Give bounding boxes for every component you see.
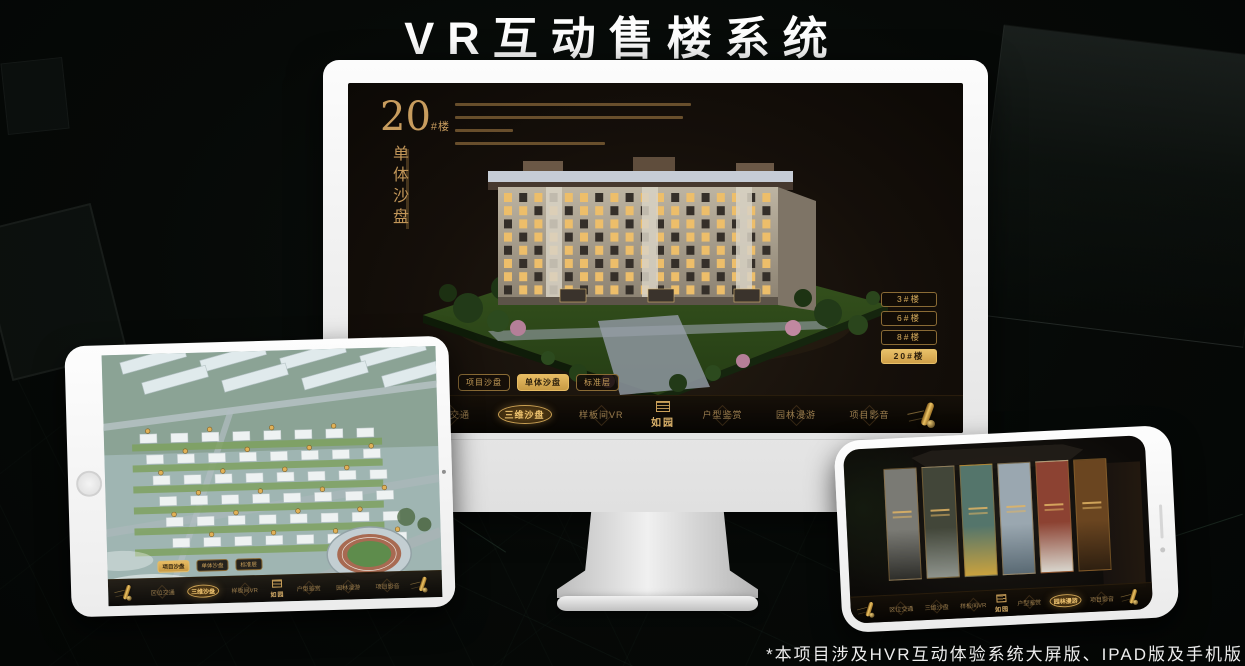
monitor-stand [557,512,758,598]
tablet-nav-item-三维沙盘[interactable]: 三维沙盘 [187,584,219,598]
phone-scroll-icon-right[interactable] [1126,588,1140,605]
phone-nav-item-项目影音[interactable]: 项目影音 [1087,592,1118,604]
tablet-nav-item-园林漫游[interactable]: 园林漫游 [333,581,363,593]
phone-screen: 区位交通三维沙盘样板间VR如园户型鉴赏园林漫游项目影音 [843,435,1153,624]
scene-gallery [883,458,1111,581]
floor-button-group: 3#楼6#楼8#楼20#楼 [881,292,937,368]
floor-button-8#楼[interactable]: 8#楼 [881,330,937,345]
phone-nav-item-园林漫游[interactable]: 园林漫游 [1049,593,1082,608]
scene-card-2[interactable] [921,465,959,578]
phone-brand-logo[interactable]: 如园 [994,593,1009,613]
card-caption-marks [969,507,988,510]
phone-scroll-icon-left[interactable] [863,601,877,618]
monitor-nav-item-项目影音[interactable]: 项目影音 [843,406,895,423]
brand-seal-icon [656,401,670,412]
tablet-tab-标准层[interactable]: 标准层 [235,558,262,571]
monitor-tab-项目沙盘[interactable]: 项目沙盘 [458,374,510,391]
block-title-number: 20 [380,94,431,140]
scene-card-1[interactable] [883,467,921,580]
floor-button-6#楼[interactable]: 6#楼 [881,311,937,326]
tablet-brand-logo[interactable]: 如园 [270,579,285,598]
phone-nav-item-三维沙盘[interactable]: 三维沙盘 [921,600,952,612]
tablet-nav-item-项目影音[interactable]: 项目影音 [372,580,402,592]
stage: VR互动售楼系统 [0,0,1245,666]
monitor-brand-logo[interactable]: 如园 [651,401,675,429]
tablet-tab-单体沙盘[interactable]: 单体沙盘 [196,559,228,572]
monitor-tab-单体沙盘[interactable]: 单体沙盘 [517,374,569,391]
monitor-tab-标准层[interactable]: 标准层 [576,374,619,391]
phone-device: 区位交通三维沙盘样板间VR如园户型鉴赏园林漫游项目影音 [834,425,1180,633]
monitor-nav-item-户型鉴赏[interactable]: 户型鉴赏 [696,406,748,423]
monitor-base [557,596,758,611]
tablet-nav-item-样板间VR[interactable]: 样板间VR [228,584,261,596]
brand-logo-label: 如园 [995,603,1009,613]
monitor-sub-tabs: 项目沙盘单体沙盘标准层 [458,374,619,391]
scene-card-6[interactable] [1073,458,1111,571]
phone-nav-item-户型鉴赏[interactable]: 户型鉴赏 [1014,596,1045,608]
brand-seal-icon [272,579,282,587]
front-camera-dot [1160,547,1165,552]
tablet-tab-项目沙盘[interactable]: 项目沙盘 [157,560,189,573]
floor-button-20#楼[interactable]: 20#楼 [881,349,937,364]
block-subtitle-english [406,149,409,229]
tablet-screen: 项目沙盘单体沙盘标准层 区位交通三维沙盘样板间VR如园户型鉴赏园林漫游项目影音 [102,346,443,606]
footnote: *本项目涉及HVR互动体验系统大屏版、IPAD版及手机版 [766,640,1243,665]
block-title-unit: #楼 [431,121,450,133]
project-description-text [455,103,691,155]
tablet-scroll-icon-right[interactable] [416,576,430,592]
brand-logo-label: 如园 [651,414,675,429]
card-caption-marks [931,509,950,512]
floor-button-3#楼[interactable]: 3#楼 [881,292,937,307]
masterplan-aerial-render[interactable] [102,346,443,606]
scene-card-4[interactable] [997,462,1035,575]
scene-card-5[interactable] [1035,460,1073,573]
card-caption-marks [1045,503,1064,506]
card-caption-marks [1082,501,1101,504]
background-photo-right [968,24,1245,348]
tablet-device: 项目沙盘单体沙盘标准层 区位交通三维沙盘样板间VR如园户型鉴赏园林漫游项目影音 [64,336,455,618]
camera-dot [442,469,446,473]
phone-nav-item-区位交通[interactable]: 区位交通 [886,602,917,614]
phone-nav-item-样板间VR[interactable]: 样板间VR [957,598,990,611]
tablet-scroll-icon-left[interactable] [120,585,134,601]
brand-seal-icon [996,594,1006,602]
background-photo-small [0,57,69,135]
scene-card-3[interactable] [959,464,997,577]
monitor-nav-item-园林漫游[interactable]: 园林漫游 [770,406,822,423]
card-caption-marks [893,510,912,513]
monitor-nav-item-三维沙盘[interactable]: 三维沙盘 [498,405,552,424]
tablet-nav-item-区位交通[interactable]: 区位交通 [147,586,177,598]
block-title: 20#楼 单体沙盘 [380,97,450,229]
monitor-scroll-icon-right[interactable] [917,402,939,428]
speaker-slit [1159,504,1164,538]
card-caption-marks [1007,505,1026,508]
home-button[interactable] [76,470,103,497]
page-title: VR互动售楼系统 [0,2,1245,67]
monitor-nav-item-样板间VR[interactable]: 样板间VR [573,406,630,423]
tablet-nav-item-户型鉴赏[interactable]: 户型鉴赏 [294,582,324,594]
brand-logo-label: 如园 [270,589,284,598]
